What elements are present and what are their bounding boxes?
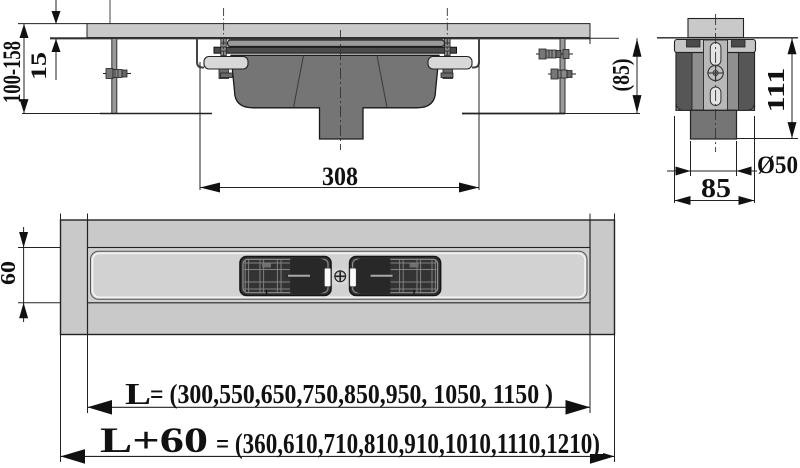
svg-text:100-158: 100-158 <box>0 41 26 103</box>
svg-text:15: 15 <box>26 52 51 80</box>
svg-text:85: 85 <box>701 173 731 203</box>
svg-text:111: 111 <box>764 68 790 113</box>
svg-text:60: 60 <box>0 261 20 285</box>
svg-text:L+60: L+60 <box>100 420 208 460</box>
svg-text:(85): (85) <box>609 59 635 92</box>
svg-text:308: 308 <box>322 162 358 191</box>
svg-text:= (300,550,650,750,850,950, 10: = (300,550,650,750,850,950, 1050, 1150 ) <box>150 379 553 409</box>
svg-text:Ø50: Ø50 <box>757 152 798 179</box>
svg-text:= (360,610,710,810,910,1010,11: = (360,610,710,810,910,1010,1110,1210) <box>216 429 600 460</box>
svg-text:L: L <box>125 376 151 411</box>
